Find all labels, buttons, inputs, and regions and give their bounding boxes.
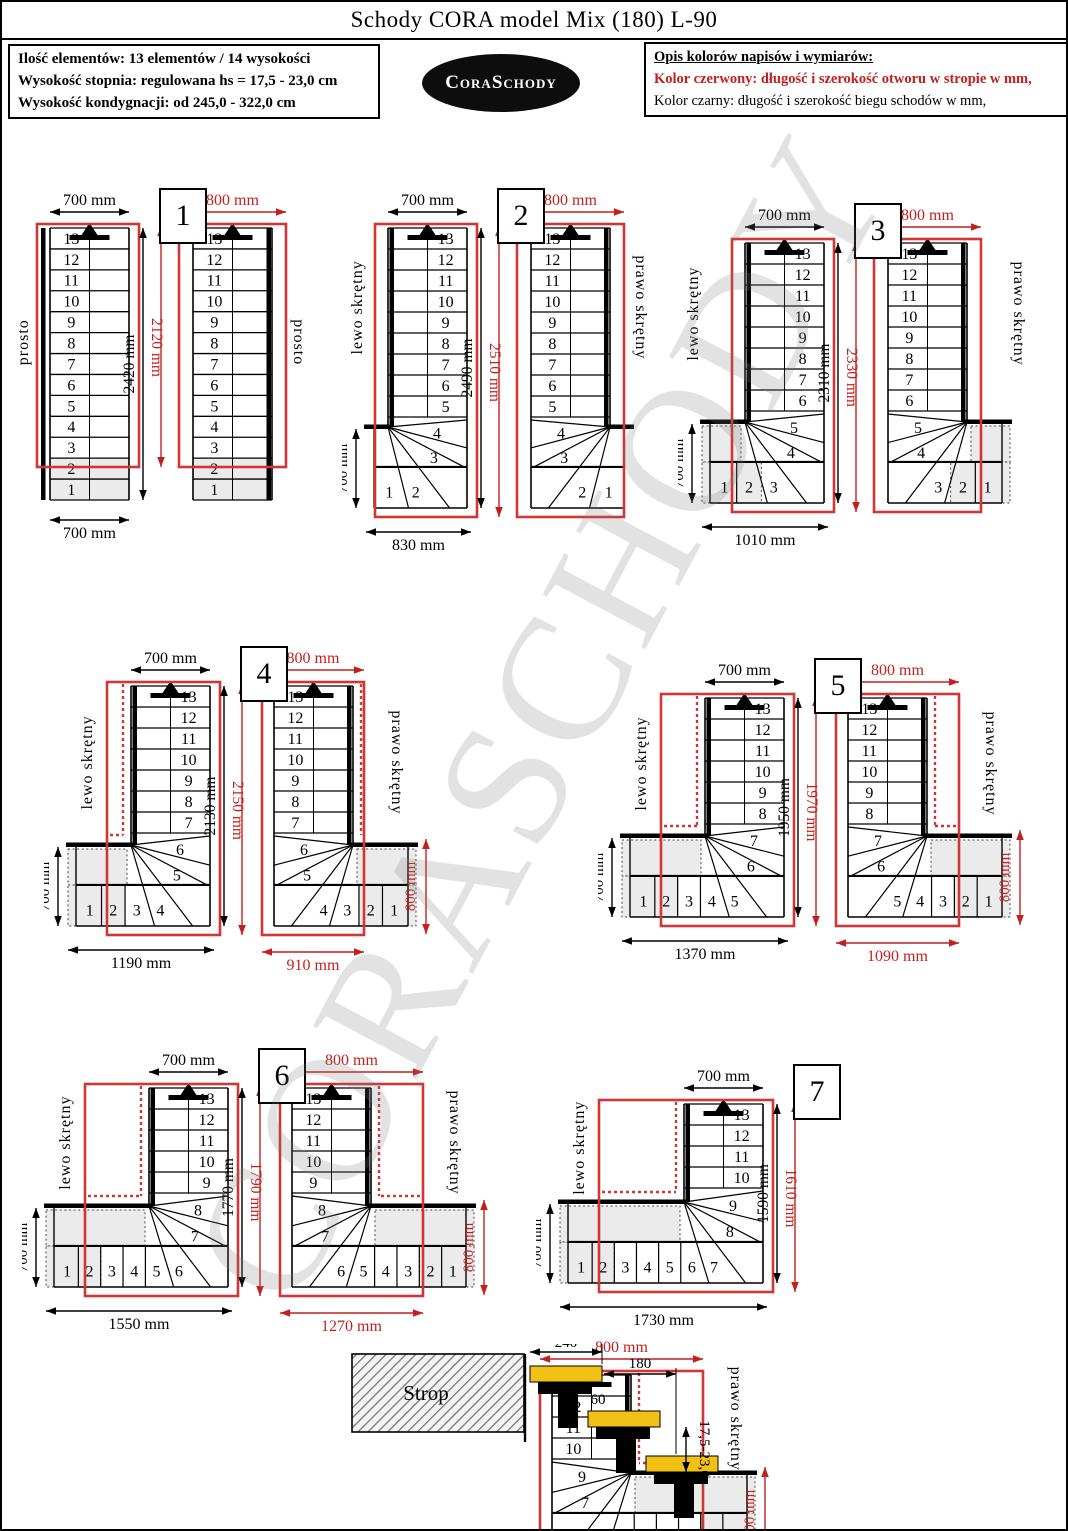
step-number: 9 xyxy=(759,785,767,802)
stair-plan-5-right: 13121110981234576800 mm1090 mm800 mmpraw… xyxy=(832,662,1050,973)
step-number: 6 xyxy=(175,1263,183,1280)
step-number: 3 xyxy=(210,440,218,457)
step-number: 6 xyxy=(337,1263,345,1280)
variant-number-box: 1 xyxy=(159,188,207,244)
dim-height-red: 2510 mm xyxy=(486,343,503,402)
arrowhead xyxy=(222,1307,232,1315)
dim-height-red: 1790 mm xyxy=(247,1163,264,1222)
step-number: 12 xyxy=(438,252,454,269)
arrowhead xyxy=(238,1088,246,1098)
arrowhead xyxy=(684,1084,694,1092)
step-number: 3 xyxy=(430,450,438,467)
stair-plan-3-right: 13121110987612354800 mmprawo skrętny xyxy=(872,207,1050,559)
dim-height-black: 2490 mm xyxy=(459,339,476,398)
shaded-band-strip xyxy=(375,1210,474,1246)
line xyxy=(684,1191,763,1202)
step-number: 8 xyxy=(799,351,807,368)
stair-plan-1-right: 13121110987654321800 mmprosto xyxy=(177,192,320,556)
arrowhead xyxy=(366,528,376,536)
arrowhead xyxy=(352,429,360,439)
step-number: 7 xyxy=(210,356,218,373)
stair-plan-2-left: 13121110987651243700 mm2490 mm2510 mm830… xyxy=(342,192,515,564)
step-post xyxy=(674,1472,694,1518)
arrowhead xyxy=(149,1068,159,1076)
arrowhead xyxy=(218,1068,228,1076)
step-number: 10 xyxy=(206,294,222,311)
up-arrow-bar xyxy=(213,235,253,240)
dim-top-red: 800 mm xyxy=(325,1052,378,1069)
step-number: 12 xyxy=(199,1112,215,1129)
step-number: 2 xyxy=(662,893,670,910)
step-number: 12 xyxy=(287,710,303,727)
step-number: 12 xyxy=(734,1128,750,1145)
line xyxy=(705,836,781,876)
step-number: 11 xyxy=(438,273,453,290)
arrowhead xyxy=(200,666,210,674)
step-number: 8 xyxy=(210,336,218,353)
step-number: 4 xyxy=(156,902,164,919)
step-number: 2 xyxy=(367,902,375,919)
step-number: 4 xyxy=(644,1259,652,1276)
step-number: 5 xyxy=(442,399,450,416)
up-arrow-bar xyxy=(551,235,591,240)
step-number: 11 xyxy=(862,743,877,760)
up-arrow-bar xyxy=(704,1111,744,1116)
dim-height-black: 2310 mm xyxy=(816,344,833,403)
up-arrow-bar xyxy=(169,1095,209,1100)
step-number: 7 xyxy=(548,357,556,374)
arrowhead xyxy=(592,1348,602,1356)
step-number: 4 xyxy=(320,902,328,919)
ceiling-opening xyxy=(661,694,794,926)
line xyxy=(149,1206,228,1226)
line xyxy=(388,420,467,427)
side-label: prosto xyxy=(18,319,32,365)
dim-top-red: 800 mm xyxy=(871,662,924,679)
stringer-bar xyxy=(41,228,46,500)
strop-edge-bar xyxy=(924,834,1012,839)
stair-plan-7-left: 13121110123456798700 mm1590 mm1610 mm173… xyxy=(536,1068,811,1339)
step-number: 8 xyxy=(67,336,75,353)
arrowhead xyxy=(413,1068,423,1076)
dim-bottom-red: 1270 mm xyxy=(321,1318,382,1335)
line xyxy=(149,1196,228,1206)
arrowhead xyxy=(422,839,430,849)
step-number: 2 xyxy=(67,461,75,478)
line xyxy=(891,422,967,462)
arrowhead xyxy=(139,228,147,238)
legend-heading: Opis kolorów napisów i wymiarów: xyxy=(654,47,1068,69)
dim-side-700: 700 mm xyxy=(536,1218,545,1268)
stringer-bar xyxy=(151,1088,156,1206)
arrowhead xyxy=(682,1427,690,1437)
dim-bottom-black: 1730 mm xyxy=(633,1312,694,1329)
arrowhead xyxy=(794,698,802,708)
side-label: lewo skrętny xyxy=(571,1101,588,1195)
step-number: 1 xyxy=(639,893,647,910)
dim-bottom-black: 1010 mm xyxy=(735,532,796,549)
step-number: 11 xyxy=(795,288,810,305)
dim-side-700: 700 mm xyxy=(22,1222,31,1272)
step-number: 7 xyxy=(799,372,807,389)
dim-height-black: 1770 mm xyxy=(220,1158,237,1217)
line xyxy=(277,845,353,885)
step-number: 10 xyxy=(305,1154,321,1171)
stair-plan-6-left: 13121110912345687700 mm1770 mm1790 mm155… xyxy=(22,1052,276,1343)
info-line-step-height: Wysokość stopnia: regulowana hs = 17,5 -… xyxy=(18,71,370,93)
dim-top-red: 800 mm xyxy=(901,207,954,224)
step-post xyxy=(558,1382,578,1428)
line xyxy=(295,1206,371,1246)
up-arrow-bar xyxy=(294,693,334,698)
stair-plan-3-left: 13121110987612354700 mm2310 mm2330 mm101… xyxy=(678,207,872,559)
arrowhead xyxy=(119,208,129,216)
arrowhead xyxy=(204,946,214,954)
step-number: 5 xyxy=(303,868,311,885)
step-number: 7 xyxy=(750,833,758,850)
stair-plan-2-right: 13121110987651243800 mmprawo skrętny xyxy=(515,192,672,564)
dim-60: 60 xyxy=(591,1392,606,1408)
dim-riser: 17,5-23,0 xyxy=(696,1420,712,1478)
step-number: 6 xyxy=(747,859,755,876)
side-label: prawo skrętny xyxy=(1010,262,1027,366)
step-number: 9 xyxy=(291,773,299,790)
stringer-bar xyxy=(686,1104,691,1202)
step-number: 12 xyxy=(305,1112,321,1129)
dim-180: 180 xyxy=(629,1356,652,1372)
step-number: 3 xyxy=(404,1263,412,1280)
stringer-bar xyxy=(347,686,352,845)
step-number: 1 xyxy=(577,1259,585,1276)
arrowhead xyxy=(32,1208,40,1218)
info-line-elements: Ilość elementów: 13 elementów / 14 wysok… xyxy=(18,49,370,71)
side-label: prawo skrętny xyxy=(632,255,649,359)
arrowhead xyxy=(614,208,624,216)
step-number: 9 xyxy=(799,330,807,347)
arrowhead xyxy=(157,457,165,467)
step-number: 5 xyxy=(210,398,218,415)
arrowhead xyxy=(949,939,959,947)
step-number: 3 xyxy=(343,902,351,919)
step-number: 9 xyxy=(548,315,556,332)
step-number: 2 xyxy=(86,1263,94,1280)
step-number: 4 xyxy=(787,445,795,462)
step-number: 10 xyxy=(199,1154,215,1171)
line xyxy=(149,1206,225,1246)
step-number: 7 xyxy=(291,815,299,832)
step-number: 9 xyxy=(309,1175,317,1192)
dim-height-black: 1950 mm xyxy=(776,778,793,837)
step-number: 1 xyxy=(86,902,94,919)
step-number: 12 xyxy=(544,252,560,269)
strop-edge-bar xyxy=(607,425,634,430)
up-arrow-bar xyxy=(151,693,191,698)
step-number: 5 xyxy=(790,420,798,437)
variant-number-box: 5 xyxy=(814,658,862,714)
arrowhead xyxy=(256,1286,264,1296)
arrowhead xyxy=(262,948,272,956)
step-number: 7 xyxy=(185,815,193,832)
line xyxy=(888,422,967,443)
info-box: Ilość elementów: 13 elementów / 14 wysok… xyxy=(8,44,380,119)
step-number: 10 xyxy=(755,764,771,781)
arrowhead xyxy=(119,516,129,524)
dim-side-red: 800 mm xyxy=(461,1222,477,1272)
step-number: 10 xyxy=(438,294,454,311)
arrowhead xyxy=(54,847,62,857)
step-number: 8 xyxy=(194,1202,202,1219)
arrowhead xyxy=(480,1285,488,1295)
arrowhead xyxy=(352,498,360,508)
step-number: 11 xyxy=(181,731,196,748)
step-number: 3 xyxy=(770,479,778,496)
step-number: 9 xyxy=(185,773,193,790)
step-number: 5 xyxy=(731,893,739,910)
dim-height-red: 2330 mm xyxy=(843,348,860,407)
dim-top: 700 mm xyxy=(401,192,454,209)
page-title: Schody CORA model Mix (180) L-90 xyxy=(2,2,1066,40)
dim-bottom-black: 1370 mm xyxy=(675,946,736,963)
step-number: 9 xyxy=(865,785,873,802)
step-number: 3 xyxy=(67,440,75,457)
arrowhead xyxy=(354,666,364,674)
dim-top: 700 mm xyxy=(718,662,771,679)
dim-bottom-black: 1550 mm xyxy=(109,1316,170,1333)
arrowhead xyxy=(622,937,632,945)
ceiling-opening xyxy=(836,694,959,926)
arrowhead xyxy=(812,916,820,926)
line xyxy=(531,427,610,448)
step-number: 5 xyxy=(359,1263,367,1280)
step-number: 4 xyxy=(917,445,925,462)
step-number: 1 xyxy=(67,482,75,499)
step-number: 12 xyxy=(206,252,222,269)
up-arrow-bar xyxy=(70,235,110,240)
line xyxy=(684,1202,760,1242)
step-number: 4 xyxy=(130,1263,138,1280)
step-number: 2 xyxy=(109,902,117,919)
step-number: 1 xyxy=(63,1263,71,1280)
arrowhead xyxy=(753,1084,763,1092)
dim-bottom-red: 1090 mm xyxy=(867,948,928,965)
step-tread xyxy=(588,1411,660,1427)
step-number: 11 xyxy=(755,743,770,760)
dim-bottom-red: 910 mm xyxy=(287,957,340,974)
line xyxy=(888,414,967,422)
dim-height-red: 1970 mm xyxy=(803,783,820,842)
step-number: 3 xyxy=(939,893,947,910)
arrowhead xyxy=(457,208,467,216)
arrowhead xyxy=(666,1370,676,1378)
step-number: 5 xyxy=(893,893,901,910)
arrowhead xyxy=(477,498,485,508)
line xyxy=(131,845,207,885)
arrowhead xyxy=(834,493,842,503)
shaded-band-strip xyxy=(702,426,741,462)
line xyxy=(745,414,824,422)
line xyxy=(745,422,821,462)
step-number: 9 xyxy=(442,315,450,332)
dim-side-700: 700 mm xyxy=(44,861,53,911)
line xyxy=(745,422,824,443)
stringer-bar xyxy=(365,1088,370,1206)
dim-top: 700 mm xyxy=(144,650,197,667)
step-number: 4 xyxy=(557,425,565,442)
line xyxy=(274,836,353,845)
step-number: 10 xyxy=(63,294,79,311)
arrowhead xyxy=(477,228,485,238)
page: Schody CORA model Mix (180) L-90 Ilość e… xyxy=(0,0,1068,1531)
shaded-band-strip xyxy=(971,426,1010,462)
line xyxy=(388,427,467,448)
step-number: 4 xyxy=(433,425,441,442)
dim-top: 700 mm xyxy=(63,192,116,209)
stringer-bar xyxy=(747,243,752,422)
strop-edge-bar xyxy=(66,843,134,848)
step-number: 10 xyxy=(287,752,303,769)
arrowhead xyxy=(546,1204,554,1214)
step-number: 10 xyxy=(901,309,917,326)
stringer-bar xyxy=(390,228,395,427)
line xyxy=(292,1196,371,1206)
ceiling-opening xyxy=(280,1084,423,1296)
diagram-variant-6: 13121110912345687700 mm1770 mm1790 mm155… xyxy=(22,1052,514,1343)
step-number: 4 xyxy=(210,419,218,436)
stringer-bar xyxy=(604,228,609,427)
step-post xyxy=(616,1427,636,1473)
arrowhead xyxy=(702,523,712,531)
line xyxy=(131,836,210,845)
arrowhead xyxy=(530,1348,540,1356)
step-tread xyxy=(530,1366,602,1382)
variant-number-box: 2 xyxy=(497,188,545,244)
arrowhead xyxy=(791,1282,799,1292)
diagram-variant-1: 13121110987654321700 mm2420 mm2120 mm700… xyxy=(18,192,320,556)
line xyxy=(292,1206,371,1226)
step-number: 8 xyxy=(548,336,556,353)
step-number: 3 xyxy=(133,902,141,919)
line xyxy=(388,427,464,467)
stair-plan-4-left: 13121110987123465700 mm2130 mm2150 mm119… xyxy=(44,650,258,982)
step-number: 3 xyxy=(934,479,942,496)
strop-edge-bar xyxy=(700,420,748,425)
step-number: 2 xyxy=(959,479,967,496)
side-label: prawo skrętny xyxy=(388,710,405,814)
step-number: 8 xyxy=(318,1202,326,1219)
step-number: 6 xyxy=(688,1259,696,1276)
step-number: 12 xyxy=(63,252,79,269)
shaded-band-strip xyxy=(560,1206,680,1242)
step-number: 8 xyxy=(291,794,299,811)
step-number: 5 xyxy=(666,1259,674,1276)
side-label: lewo skrętny xyxy=(57,1095,74,1189)
step-number: 7 xyxy=(442,357,450,374)
stair-plan-5-left: 13121110981234576700 mm1950 mm1970 mm137… xyxy=(598,662,832,973)
step-number: 11 xyxy=(288,731,303,748)
step-number: 1 xyxy=(985,893,993,910)
step-number: 11 xyxy=(64,273,79,290)
step-number: 2 xyxy=(210,461,218,478)
arrowhead xyxy=(276,208,286,216)
variant-number-box: 4 xyxy=(240,646,288,702)
line xyxy=(848,836,927,856)
step-number: 2 xyxy=(578,484,586,501)
dim-top-red: 800 mm xyxy=(287,650,340,667)
up-arrow-bar xyxy=(725,705,765,710)
arrowhead xyxy=(422,924,430,934)
arrowhead xyxy=(238,1277,246,1287)
step-number: 2 xyxy=(745,479,753,496)
arrowhead xyxy=(388,208,398,216)
step-number: 1 xyxy=(210,482,218,499)
line xyxy=(851,836,927,876)
stringer-bar xyxy=(921,698,926,836)
step-number: 2 xyxy=(599,1259,607,1276)
arrowhead xyxy=(1016,830,1024,840)
arrowhead xyxy=(32,1277,40,1287)
arrowhead xyxy=(688,493,696,503)
dim-height-black: 2420 mm xyxy=(121,335,138,394)
diagram-variant-4: 13121110987123465700 mm2130 mm2150 mm119… xyxy=(44,650,456,982)
arrowhead xyxy=(68,946,78,954)
line xyxy=(534,427,610,467)
side-label: lewo skrętny xyxy=(349,260,366,354)
dim-height-red: 2120 mm xyxy=(148,318,165,377)
step-number: 6 xyxy=(548,378,556,395)
stringer-bar xyxy=(267,228,272,500)
line xyxy=(705,827,784,836)
diagram-variant-3: 13121110987612354700 mm2310 mm2330 mm101… xyxy=(678,207,1050,559)
arrowhead xyxy=(238,925,246,935)
side-label: lewo skrętny xyxy=(685,266,702,360)
logo-text: CoraSchody xyxy=(445,72,557,94)
step-number: 2 xyxy=(412,484,420,501)
arrowhead xyxy=(773,1104,781,1114)
step-number: 10 xyxy=(861,764,877,781)
line xyxy=(274,845,353,865)
step-number: 3 xyxy=(560,450,568,467)
arrowhead xyxy=(139,490,147,500)
arrowhead xyxy=(131,666,141,674)
step-number: 4 xyxy=(67,419,75,436)
step-number: 12 xyxy=(181,710,197,727)
step-number: 6 xyxy=(300,842,308,859)
legend-box: Opis kolorów napisów i wymiarów: Kolor c… xyxy=(644,42,1068,117)
arrowhead xyxy=(836,939,846,947)
line xyxy=(848,827,927,836)
arrowhead xyxy=(220,916,228,926)
step-number: 6 xyxy=(877,859,885,876)
stringer-bar xyxy=(961,243,966,422)
step-number: 11 xyxy=(902,288,917,305)
dim-side-700: 700 mm xyxy=(678,438,687,488)
step-number: 7 xyxy=(874,833,882,850)
step-number: 11 xyxy=(734,1149,749,1166)
up-arrow-bar xyxy=(408,235,448,240)
step-number: 11 xyxy=(306,1133,321,1150)
step-number: 9 xyxy=(905,330,913,347)
variant-number-box: 7 xyxy=(793,1064,841,1120)
arrowhead xyxy=(546,1273,554,1283)
up-arrow-bar xyxy=(908,250,948,255)
step-number: 10 xyxy=(795,309,811,326)
logo: CoraSchody xyxy=(422,54,580,112)
step-number: 7 xyxy=(67,356,75,373)
step-number: 7 xyxy=(710,1259,718,1276)
arrowhead xyxy=(705,678,715,686)
step-number: 8 xyxy=(726,1224,734,1241)
dim-side-700: 700 mm xyxy=(598,852,607,902)
